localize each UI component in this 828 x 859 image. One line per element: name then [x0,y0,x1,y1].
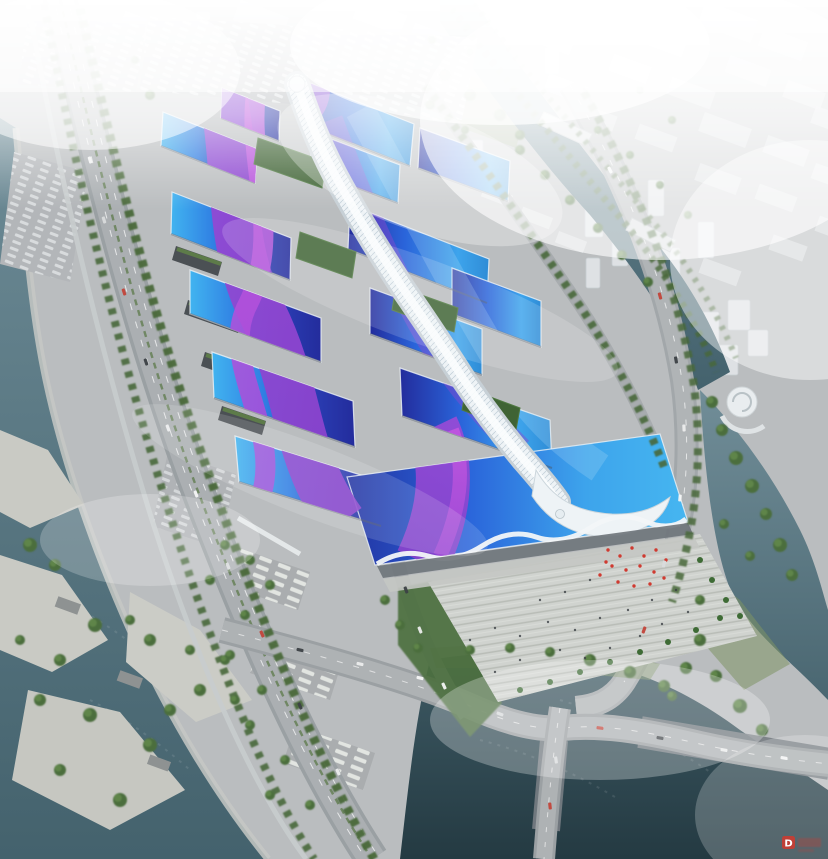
person-dot [539,599,541,601]
tree-highlight-icon [55,765,62,772]
person-dot [627,609,629,611]
person-dot [599,617,601,619]
flag-dot [638,564,641,567]
tree-highlight-icon [258,686,264,692]
palm-tree-icon [697,557,703,563]
tree-highlight-icon [281,756,287,762]
person-dot [519,659,521,661]
person-dot [651,599,653,601]
palm-tree-icon [693,627,699,633]
flag-dot [624,568,627,571]
tree-highlight-icon [24,539,32,547]
flag-dot [598,573,601,576]
tree-highlight-icon [165,705,172,712]
tree-highlight-icon [546,648,552,654]
person-dot [564,591,566,593]
tree-highlight-icon [730,452,738,460]
city-tower [586,258,600,288]
tree-highlight-icon [306,801,312,807]
person-dot [469,639,471,641]
flag-dot [652,570,655,573]
spiral-building-body [727,387,757,417]
tree-highlight-icon [241,611,247,617]
tree-highlight-icon [396,621,402,627]
watermark-text-blur [798,838,821,847]
person-dot [584,657,586,659]
person-dot [559,649,561,651]
fog-patch [430,660,770,780]
tree-highlight-icon [266,581,272,587]
flag-dot [604,560,607,563]
tree-highlight-icon [195,685,202,692]
flag-dot [618,554,621,557]
tree-highlight-icon [55,655,62,662]
tree-highlight-icon [246,721,252,727]
palm-tree-icon [717,615,723,621]
person-dot [639,635,641,637]
car-icon [682,424,686,431]
watermark-letter: D [784,839,792,850]
tree-highlight-icon [35,695,42,702]
palm-tree-icon [723,597,729,603]
person-dot [519,635,521,637]
tree-highlight-icon [696,596,702,602]
tree-highlight-icon [787,570,794,577]
tree-highlight-icon [381,596,387,602]
flag-dot [648,582,651,585]
fog-patch [40,494,260,586]
flag-dot [654,548,657,551]
scene-svg: D [0,0,828,859]
flag-dot [606,548,609,551]
tree-highlight-icon [717,425,724,432]
tree-highlight-icon [466,646,472,652]
tree-highlight-icon [695,635,702,642]
tree-highlight-icon [84,709,92,717]
tree-highlight-icon [414,644,420,650]
person-dot [661,623,663,625]
car-icon [678,494,682,501]
entrance-sphere [556,510,565,519]
tree-highlight-icon [16,636,22,642]
tree-highlight-icon [145,635,152,642]
palm-tree-icon [637,649,643,655]
palm-tree-icon [665,639,671,645]
tree-highlight-icon [226,651,232,657]
person-dot [589,579,591,581]
aerial-render-canvas: D [0,0,828,859]
tree-highlight-icon [114,794,122,802]
flag-dot [610,564,613,567]
person-dot [687,611,689,613]
tree-highlight-icon [774,539,782,547]
tree-highlight-icon [720,520,726,526]
person-dot [609,647,611,649]
tree-highlight-icon [89,619,97,627]
tree-highlight-icon [144,739,152,747]
flag-dot [662,576,665,579]
flag-dot [630,546,633,549]
person-dot [547,621,549,623]
person-dot [574,629,576,631]
tree-highlight-icon [707,397,714,404]
palm-tree-icon [737,613,743,619]
palm-tree-icon [709,577,715,583]
tree-highlight-icon [506,644,512,650]
person-dot [494,627,496,629]
tree-highlight-icon [266,791,272,797]
tree-highlight-icon [186,646,192,652]
tree-highlight-icon [644,278,650,284]
flag-dot [642,554,645,557]
flag-dot [616,580,619,583]
flag-dot [632,584,635,587]
tree-highlight-icon [746,480,754,488]
tree-highlight-icon [126,616,132,622]
person-dot [675,589,677,591]
tree-highlight-icon [231,696,237,702]
watermark-text-blur [798,849,814,852]
tree-highlight-icon [746,552,752,558]
tree-highlight-icon [761,509,768,516]
